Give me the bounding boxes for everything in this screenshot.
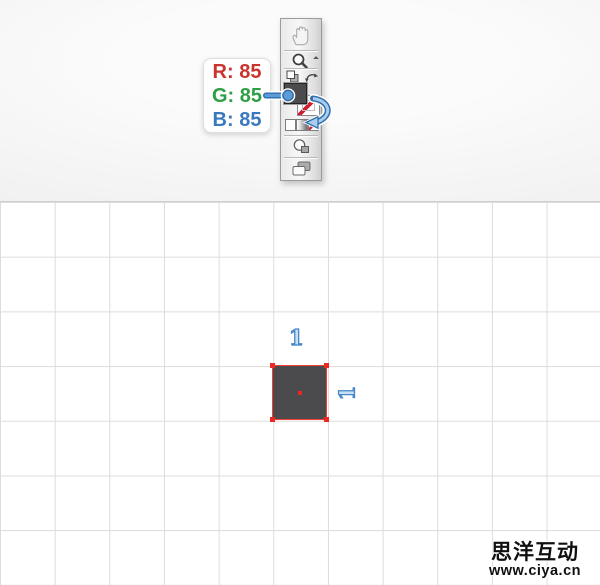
screen-mode-button[interactable] xyxy=(292,161,311,181)
rgb-red-value: R: 85 xyxy=(213,60,262,84)
rgb-blue-value: B: 85 xyxy=(213,108,262,132)
screen-mode-icon xyxy=(292,163,311,180)
toolbar-divider xyxy=(284,135,318,136)
hand-tool-button[interactable] xyxy=(289,24,313,53)
toolbar-divider xyxy=(284,50,318,51)
watermark-url: www.ciya.cn xyxy=(489,564,581,579)
tools-panel xyxy=(280,18,322,181)
flyout-indicator-icon xyxy=(313,56,319,62)
anchor-point[interactable] xyxy=(270,363,275,368)
artboard-grid[interactable]: 1 1 思洋互动 www.ciya.cn xyxy=(0,201,600,585)
color-button[interactable] xyxy=(285,119,296,131)
anchor-point[interactable] xyxy=(270,417,275,422)
colorbar xyxy=(285,119,319,131)
anchor-point[interactable] xyxy=(324,363,329,368)
watermark-title: 思洋互动 xyxy=(489,542,581,564)
gradient-button[interactable] xyxy=(296,119,308,131)
rgb-value-tooltip: R: 85 G: 85 B: 85 xyxy=(203,58,271,133)
rectangle-shape[interactable] xyxy=(272,365,327,420)
toolbar-divider xyxy=(284,68,318,69)
rgb-green-value: G: 85 xyxy=(212,84,262,108)
draw-mode-button[interactable] xyxy=(292,138,310,159)
watermark: 思洋互动 www.ciya.cn xyxy=(489,542,581,579)
toolbar-divider xyxy=(284,157,318,158)
draw-mode-icon xyxy=(292,141,310,158)
width-label: 1 xyxy=(289,327,304,349)
none-button[interactable] xyxy=(308,119,319,131)
fill-swatch[interactable] xyxy=(284,83,307,104)
anchor-point[interactable] xyxy=(324,417,329,422)
center-point[interactable] xyxy=(298,391,302,395)
screenshot-root: R: 85 G: 85 B: 85 xyxy=(0,0,600,585)
height-label: 1 xyxy=(336,386,358,401)
workspace-background: R: 85 G: 85 B: 85 xyxy=(0,0,600,201)
